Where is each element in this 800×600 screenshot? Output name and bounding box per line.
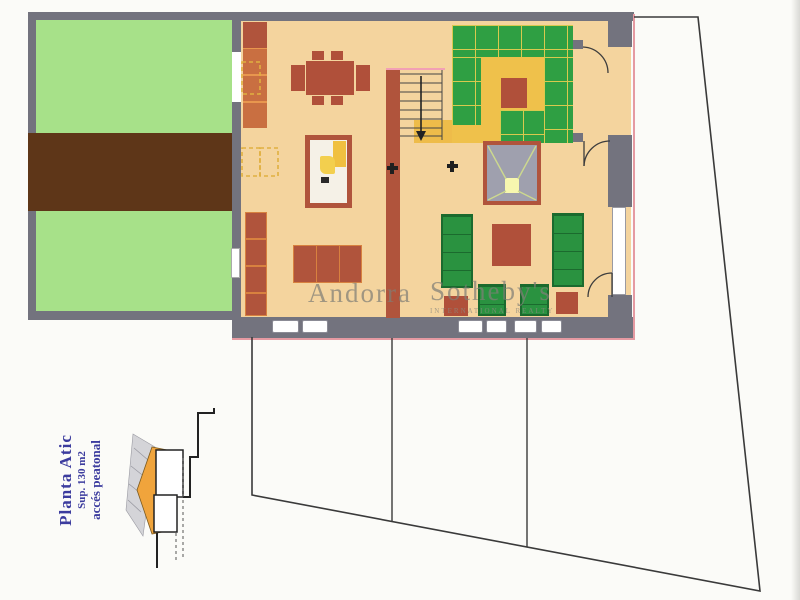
terrace-lawn-upper (36, 20, 232, 133)
window (302, 320, 328, 333)
kitchen-tiles (500, 110, 544, 143)
brand-watermark: Andorra Sotheby's INTERNATIONAL REALTY (308, 278, 618, 318)
section-diagram (126, 408, 214, 568)
brand-name-left: Andorra (308, 278, 412, 309)
stove-flame-detail (320, 156, 335, 174)
terrace-lawn-lower (36, 211, 232, 311)
kitchen-tiles (544, 57, 573, 143)
earth-planting-area (28, 133, 236, 211)
window (514, 320, 537, 333)
sofa (552, 213, 584, 287)
dining-chair (291, 65, 305, 91)
plan-title: Planta Atic (56, 434, 76, 526)
dining-chair (312, 51, 324, 60)
brand-subtitle: INTERNATIONAL REALTY (430, 307, 554, 315)
shelving-strip (245, 212, 267, 316)
kitchen-tiles (452, 25, 573, 57)
exterior-wall-right-segment (608, 21, 632, 47)
dining-chair (312, 96, 324, 105)
terrace-door-opening (232, 52, 241, 102)
plan-outline (232, 338, 635, 340)
stove-detail (321, 177, 329, 183)
brand-name-right: Sotheby's (430, 278, 552, 305)
window (272, 320, 299, 333)
brand-name-right-block: Sotheby's INTERNATIONAL REALTY (430, 278, 554, 315)
scan-edge-artifact (791, 0, 800, 600)
plan-access: accés peatonal (88, 440, 104, 520)
fireplace-hood-skylight (483, 141, 541, 205)
dining-chair (331, 96, 343, 105)
kitchen-tiles (452, 57, 481, 125)
plan-outline (633, 14, 635, 340)
kitchen-counter-end (243, 22, 267, 48)
plan-label: Planta Atic Sup. 130 m2 accés peatonal (30, 410, 130, 550)
coffee-table (492, 224, 531, 266)
window (541, 320, 562, 333)
dining-chair (331, 51, 343, 60)
plan-area: Sup. 130 m2 (76, 451, 88, 509)
dining-table (306, 61, 354, 95)
window (486, 320, 507, 333)
window (458, 320, 483, 333)
exterior-wall-top (232, 12, 634, 21)
dining-chair (356, 65, 370, 91)
window-left-wall (231, 248, 240, 278)
floor-plan-page: Andorra Sotheby's INTERNATIONAL REALTY P… (0, 0, 800, 600)
exterior-wall-right-segment (608, 135, 632, 207)
kitchen-island (501, 78, 527, 108)
skylight-center (505, 178, 519, 193)
